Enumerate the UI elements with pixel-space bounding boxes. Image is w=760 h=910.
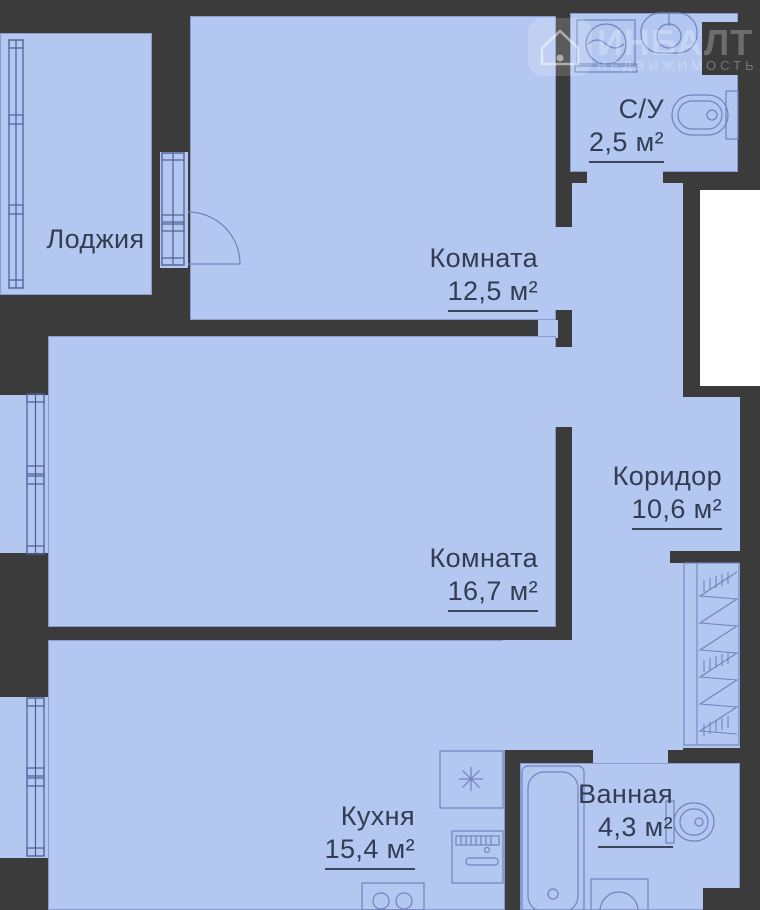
floor-kitchen-entry — [503, 640, 572, 750]
room-label-loggia: Лоджия — [33, 224, 158, 255]
room-label-room-16-7: Комната 16,7 м² — [398, 543, 538, 612]
watermark-tagline: НЕДВИЖИМОСТЬ — [597, 58, 760, 73]
room-label-kitchen: Кухня 15,4 м² — [275, 801, 415, 870]
floor-corridor-upper — [572, 183, 683, 397]
house-icon — [528, 18, 592, 76]
floor-window-bay-kitchen — [0, 697, 48, 858]
floor-loggia — [0, 33, 152, 295]
opening-room-16-7 — [554, 347, 574, 427]
wall-block-bottom-right — [703, 888, 760, 910]
stair-shaft — [700, 190, 760, 386]
wall-stub-wardrobe — [670, 551, 740, 563]
opening-room-12-5 — [554, 227, 574, 310]
room-label-bathroom: Ванная 4,3 м² — [533, 779, 673, 848]
room-label-corridor: Коридор 10,6 м² — [582, 461, 722, 530]
floor-plan: Лоджия Комната 12,5 м² С/У 2,5 м² Комнат… — [0, 0, 760, 910]
room-label-room-12-5: Комната 12,5 м² — [398, 243, 538, 312]
room-label-wc: С/У 2,5 м² — [524, 94, 664, 163]
floor-wardrobe-niche — [683, 562, 740, 748]
floor-balcony-unit — [160, 152, 188, 268]
floor-window-bay-room — [0, 395, 48, 553]
floor-corridor-lower — [572, 553, 683, 750]
